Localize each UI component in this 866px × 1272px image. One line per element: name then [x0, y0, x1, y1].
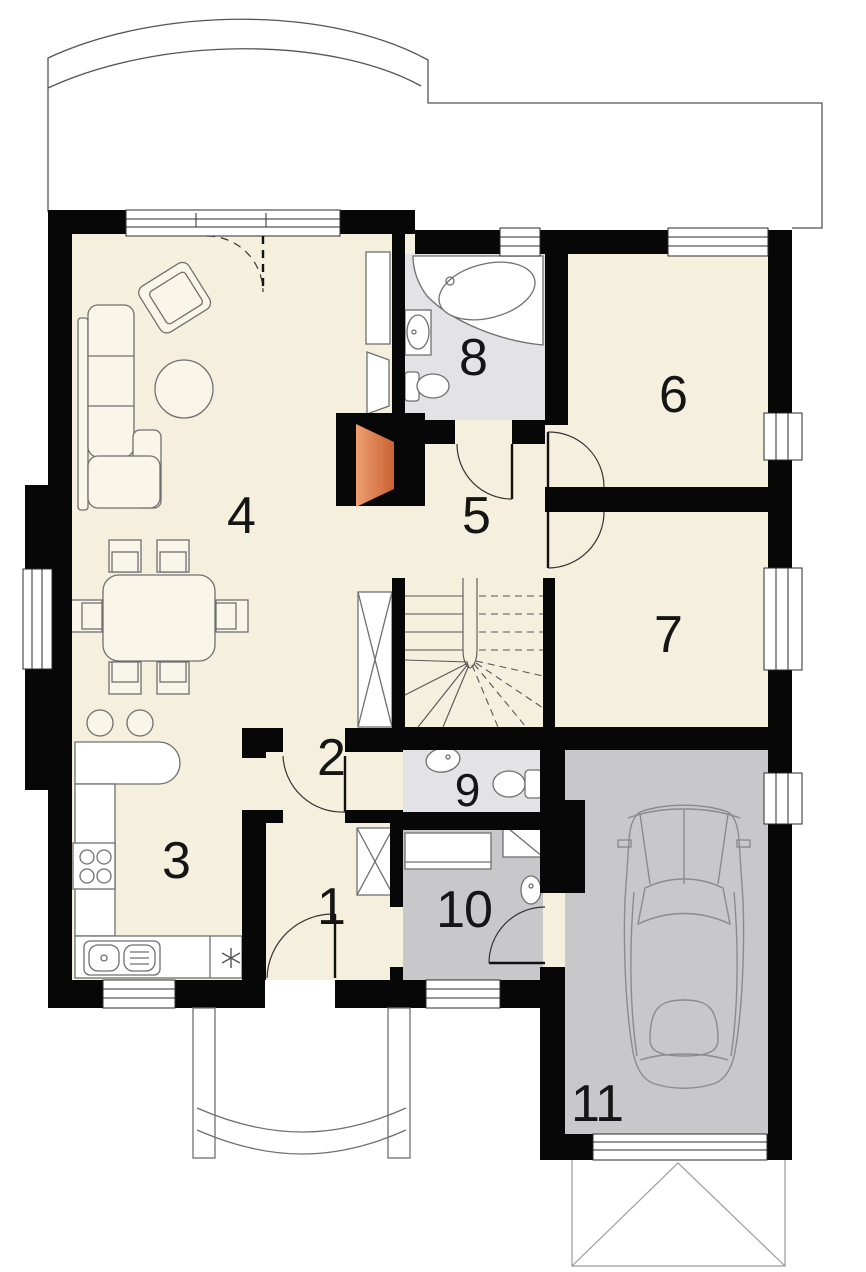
dining-chair-seat	[112, 552, 138, 572]
floor-plan-drawing	[0, 0, 866, 1272]
room-label-9: 9	[455, 767, 480, 813]
porch-step-arc	[197, 1108, 406, 1132]
wall-garage-chimney-pillar	[540, 800, 585, 893]
sofa-seats	[88, 305, 134, 457]
entry-porch	[193, 1008, 410, 1158]
dining-chair-seat	[160, 662, 186, 682]
wall-4-2-right	[345, 728, 403, 752]
dining-table	[103, 575, 215, 661]
room-label-2: 2	[317, 732, 345, 784]
room-label-4: 4	[227, 490, 255, 542]
wc-toilet-tank	[525, 770, 542, 798]
porch-step-arc	[197, 1130, 406, 1154]
dining-chair-seat	[216, 603, 236, 629]
wall-hall-room6	[545, 254, 568, 425]
wall-door-stub-6-7	[545, 487, 605, 512]
tall-cabinet	[366, 252, 390, 344]
bar-stool	[87, 710, 113, 736]
washbasin	[407, 315, 429, 349]
wall-garage-west-mid	[540, 967, 565, 1008]
wall-4-2-left	[266, 728, 283, 752]
terrace-outer-line	[48, 19, 822, 228]
wall-kitchen-bottom	[242, 815, 266, 980]
kitchen-peninsula-counter	[75, 742, 180, 784]
sofa-backrest	[78, 318, 88, 510]
wall-corridor-v-mid	[390, 812, 403, 907]
dining-chair-seat	[82, 603, 102, 629]
terrace-inner-line	[48, 49, 421, 88]
terrace-outline	[48, 19, 822, 228]
stove	[73, 843, 115, 889]
room-label-3: 3	[162, 835, 190, 887]
toilet-bowl	[417, 374, 449, 398]
wall-stairs-right	[543, 578, 555, 727]
window-bathroom-top	[500, 228, 540, 256]
window-utility-bottom	[426, 980, 500, 1008]
wc-toilet-bowl	[493, 771, 525, 797]
room-label-8: 8	[459, 332, 487, 384]
room-label-1: 1	[317, 881, 345, 933]
room-label-10: 10	[436, 884, 492, 936]
wall-room6-room7	[605, 487, 768, 512]
wall-1-2-left	[242, 810, 283, 823]
bar-stool	[127, 710, 153, 736]
utility-counter	[405, 833, 491, 869]
coffee-table	[155, 360, 213, 418]
wall-bathroom-left	[392, 230, 405, 420]
driveway-outline	[572, 1160, 785, 1266]
window-room6-right	[764, 413, 802, 460]
radiator-panel	[367, 352, 389, 414]
wall-kitchen-top	[242, 728, 266, 758]
garage-driveway	[572, 1160, 785, 1266]
hall-wardrobe	[357, 828, 393, 895]
room-label-5: 5	[462, 490, 490, 542]
sofa-corner-seat	[88, 456, 160, 508]
window-room7-right	[764, 568, 802, 670]
garage-door-opening	[593, 1134, 767, 1160]
dining-chair-seat	[160, 552, 186, 572]
room-label-7: 7	[654, 609, 682, 661]
garage-door-swing-lines	[572, 1163, 785, 1266]
window-dining-left	[23, 569, 52, 669]
dining-chair-seat	[112, 662, 138, 682]
room-label-6: 6	[659, 369, 687, 421]
window-kitchen-bottom	[103, 980, 175, 1008]
wall-right	[768, 230, 792, 1160]
wall-1-2-right	[345, 810, 403, 823]
wall-corridor-v-low	[390, 967, 403, 980]
window-room6-top	[668, 228, 768, 256]
room-label-11: 11	[571, 1078, 623, 1130]
utility-sink	[521, 876, 541, 904]
floor-plan-canvas: 1 2 3 4 5 6 7 8 9 10 11	[0, 0, 866, 1272]
wall-bathroom-bottom-left	[405, 420, 455, 444]
window-living-top	[126, 210, 340, 236]
wall-bathroom-bottom-right	[512, 420, 545, 444]
window-garage-right	[764, 773, 802, 824]
wall-stairs-left	[392, 578, 405, 750]
wall-stairs-bottom	[392, 727, 768, 750]
sink-basin-left	[89, 945, 119, 971]
wall-garage-west-lower	[540, 1008, 565, 1160]
